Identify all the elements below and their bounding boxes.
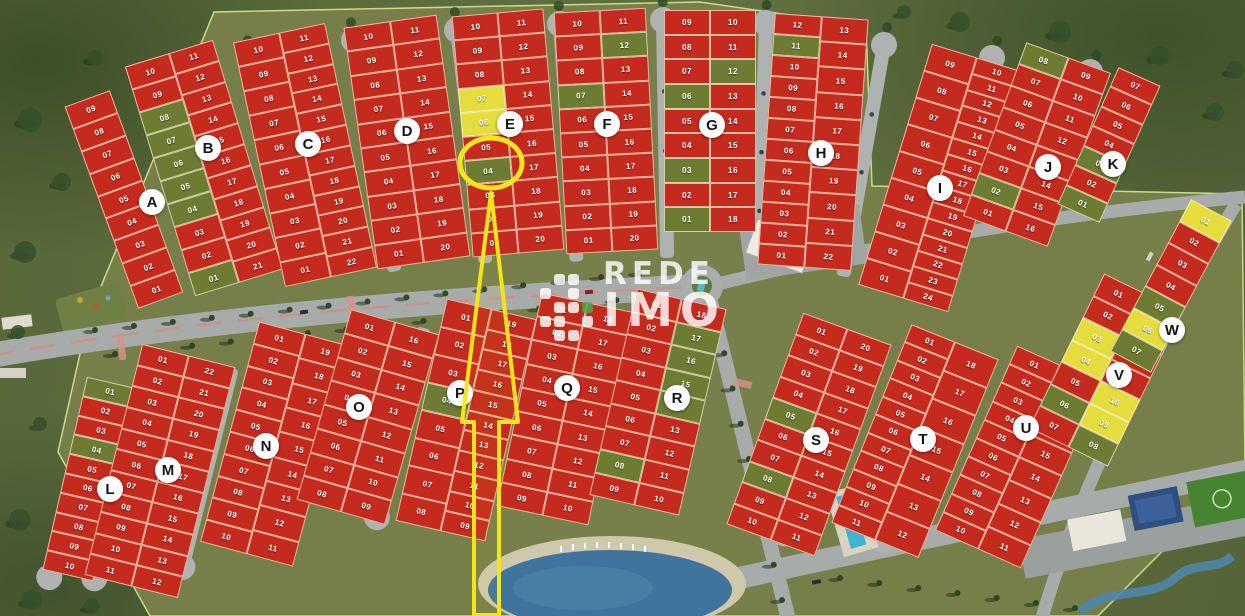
lot-E-01[interactable]: 01 bbox=[471, 229, 519, 257]
lot-G-11[interactable]: 11 bbox=[710, 35, 756, 60]
lot-H-21[interactable]: 21 bbox=[806, 217, 855, 245]
lot-G-02[interactable]: 02 bbox=[664, 183, 710, 208]
lot-F-19[interactable]: 19 bbox=[610, 201, 657, 228]
lot-G-03[interactable]: 03 bbox=[664, 158, 710, 183]
lot-G-18[interactable]: 18 bbox=[710, 207, 756, 232]
lot-G-16[interactable]: 16 bbox=[710, 158, 756, 183]
lot-F-11[interactable]: 11 bbox=[600, 8, 647, 35]
lot-G-10[interactable]: 10 bbox=[710, 10, 756, 35]
lot-F-06[interactable]: 06 bbox=[559, 107, 606, 134]
lot-G-08[interactable]: 08 bbox=[664, 35, 710, 60]
lot-F-20[interactable]: 20 bbox=[611, 225, 658, 252]
lot-F-02[interactable]: 02 bbox=[564, 204, 611, 231]
lot-F-09[interactable]: 09 bbox=[555, 34, 602, 61]
lot-G-12[interactable]: 12 bbox=[710, 59, 756, 84]
lot-F-17[interactable]: 17 bbox=[607, 153, 654, 180]
block-F: 1009080706050403020111121314151617181920 bbox=[554, 8, 659, 254]
lot-F-01[interactable]: 01 bbox=[565, 228, 612, 255]
lot-H-13[interactable]: 13 bbox=[820, 16, 869, 44]
lot-G-17[interactable]: 17 bbox=[710, 183, 756, 208]
lot-H-22[interactable]: 22 bbox=[804, 243, 853, 271]
block-G: 090807060504030201101112131415161718 bbox=[664, 10, 756, 232]
lot-F-07[interactable]: 07 bbox=[558, 83, 605, 110]
lot-H-14[interactable]: 14 bbox=[818, 41, 867, 69]
lot-F-15[interactable]: 15 bbox=[605, 104, 652, 131]
lot-F-05[interactable]: 05 bbox=[560, 131, 607, 158]
lot-F-14[interactable]: 14 bbox=[603, 80, 650, 107]
lot-G-04[interactable]: 04 bbox=[664, 133, 710, 158]
lot-F-13[interactable]: 13 bbox=[602, 56, 649, 83]
lot-G-09[interactable]: 09 bbox=[664, 10, 710, 35]
lot-H-01[interactable]: 01 bbox=[757, 243, 805, 267]
lot-E-20[interactable]: 20 bbox=[516, 225, 564, 253]
block-E: 1009080706050403020111121314151617181920 bbox=[452, 8, 565, 257]
lot-F-08[interactable]: 08 bbox=[556, 59, 603, 86]
lot-G-06[interactable]: 06 bbox=[664, 84, 710, 109]
lot-D-20[interactable]: 20 bbox=[421, 232, 471, 263]
lot-H-20[interactable]: 20 bbox=[808, 192, 857, 220]
lot-H-19[interactable]: 19 bbox=[809, 167, 858, 195]
lot-G-01[interactable]: 01 bbox=[664, 207, 710, 232]
lot-F-16[interactable]: 16 bbox=[606, 129, 653, 156]
lot-blocks-layer: 0908070605040302011009080706050403020111… bbox=[0, 0, 1245, 616]
block-H: 1211100908070605040302011314151617181920… bbox=[757, 13, 868, 271]
lot-H-18[interactable]: 18 bbox=[811, 142, 860, 170]
lot-F-10[interactable]: 10 bbox=[554, 10, 601, 37]
lot-G-13[interactable]: 13 bbox=[710, 84, 756, 109]
lot-H-16[interactable]: 16 bbox=[815, 92, 864, 120]
lot-H-15[interactable]: 15 bbox=[817, 67, 866, 95]
lot-H-17[interactable]: 17 bbox=[813, 117, 862, 145]
lot-D-01[interactable]: 01 bbox=[374, 239, 424, 270]
lot-F-12[interactable]: 12 bbox=[601, 32, 648, 59]
estate-lot-map: 0908070605040302011009080706050403020111… bbox=[0, 0, 1245, 616]
lot-G-14[interactable]: 14 bbox=[710, 109, 756, 134]
lot-G-07[interactable]: 07 bbox=[664, 59, 710, 84]
lot-F-03[interactable]: 03 bbox=[563, 179, 610, 206]
lot-F-18[interactable]: 18 bbox=[609, 177, 656, 204]
lot-F-04[interactable]: 04 bbox=[561, 155, 608, 182]
lot-G-05[interactable]: 05 bbox=[664, 109, 710, 134]
lot-G-15[interactable]: 15 bbox=[710, 133, 756, 158]
